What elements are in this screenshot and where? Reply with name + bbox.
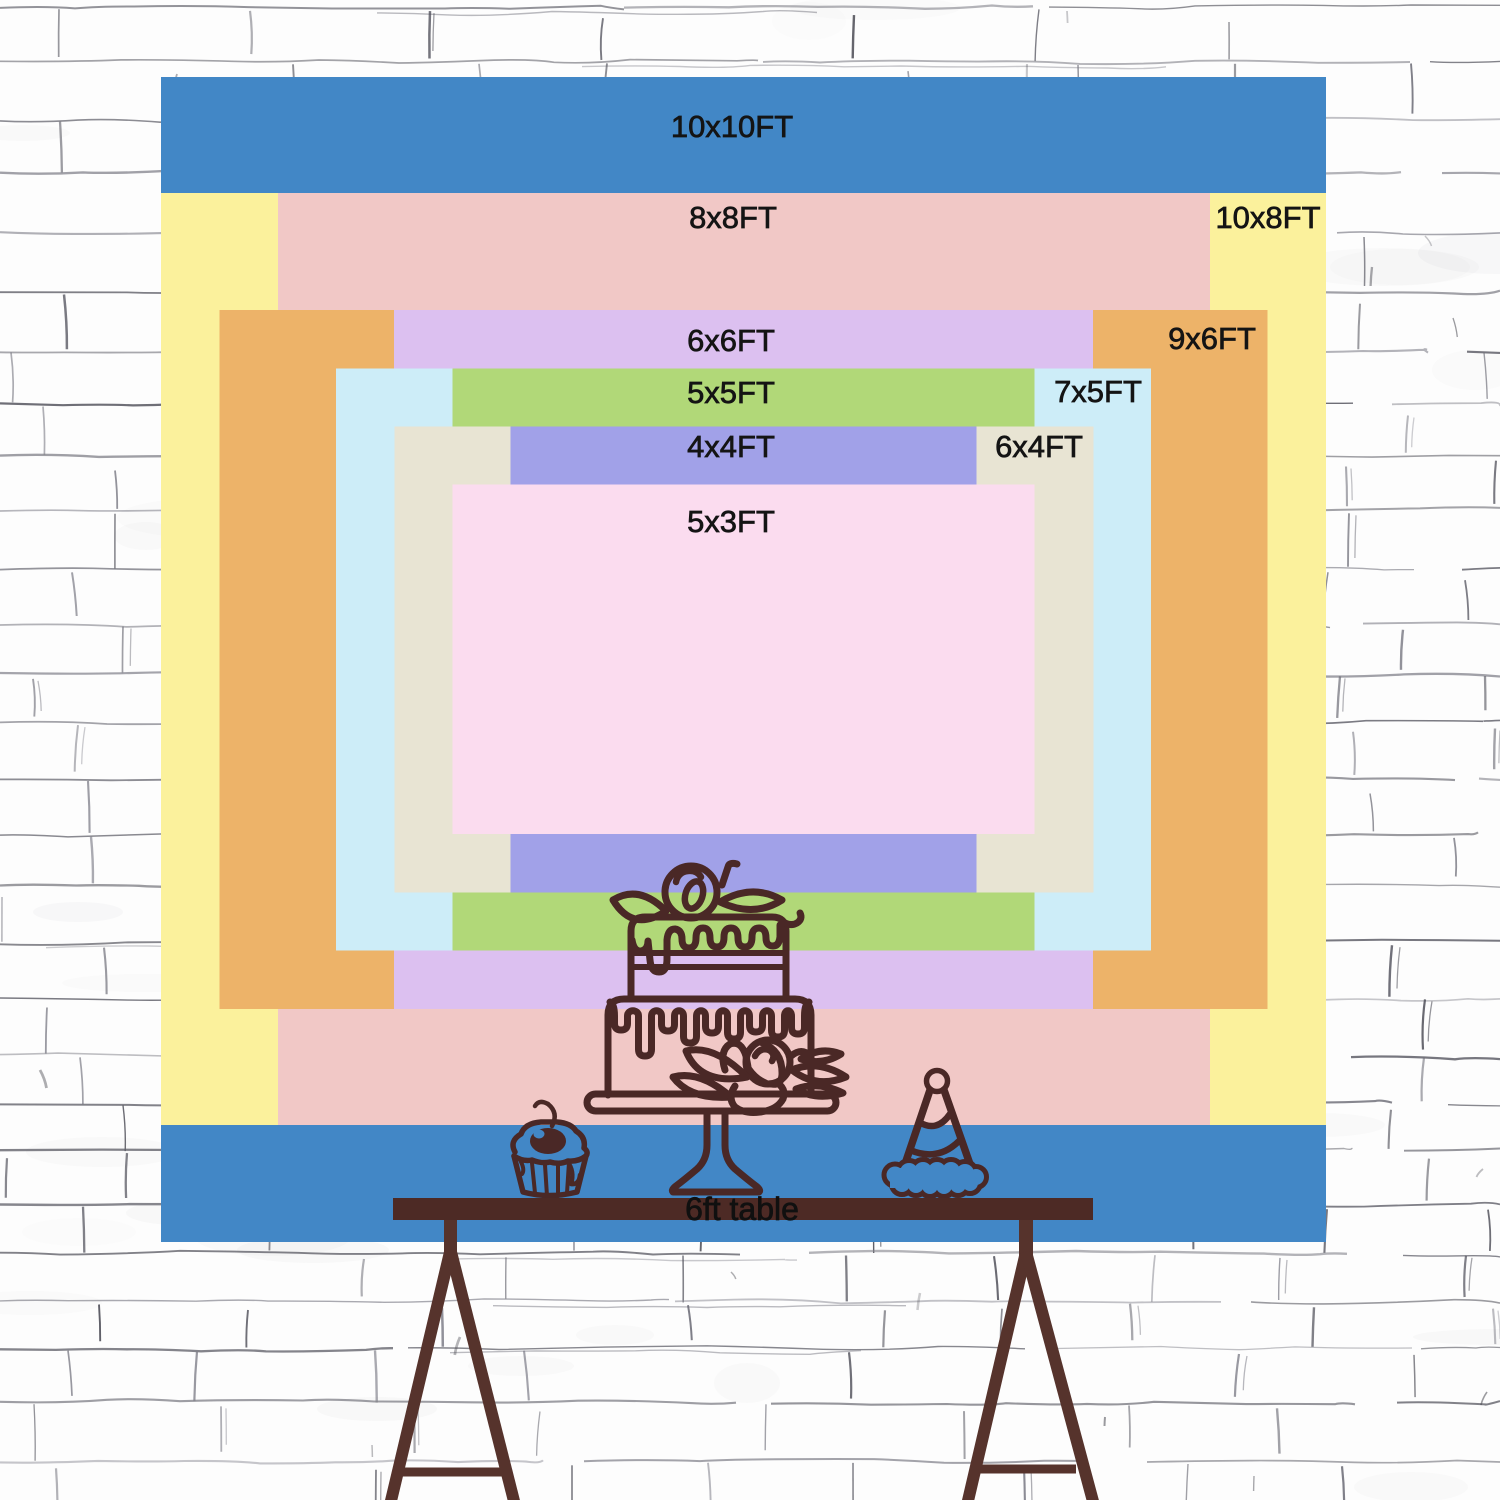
- svg-text:5x5FT: 5x5FT: [687, 375, 775, 410]
- svg-text:10x8FT: 10x8FT: [1215, 200, 1320, 235]
- svg-text:7x5FT: 7x5FT: [1054, 374, 1142, 409]
- svg-text:6ft table: 6ft table: [685, 1191, 799, 1227]
- svg-text:5x3FT: 5x3FT: [687, 504, 775, 539]
- svg-text:10x10FT: 10x10FT: [671, 109, 793, 144]
- svg-text:6x6FT: 6x6FT: [687, 323, 775, 358]
- svg-text:8x8FT: 8x8FT: [689, 200, 777, 235]
- svg-text:4x4FT: 4x4FT: [687, 429, 775, 464]
- svg-text:6x4FT: 6x4FT: [995, 429, 1083, 464]
- svg-text:9x6FT: 9x6FT: [1168, 321, 1256, 356]
